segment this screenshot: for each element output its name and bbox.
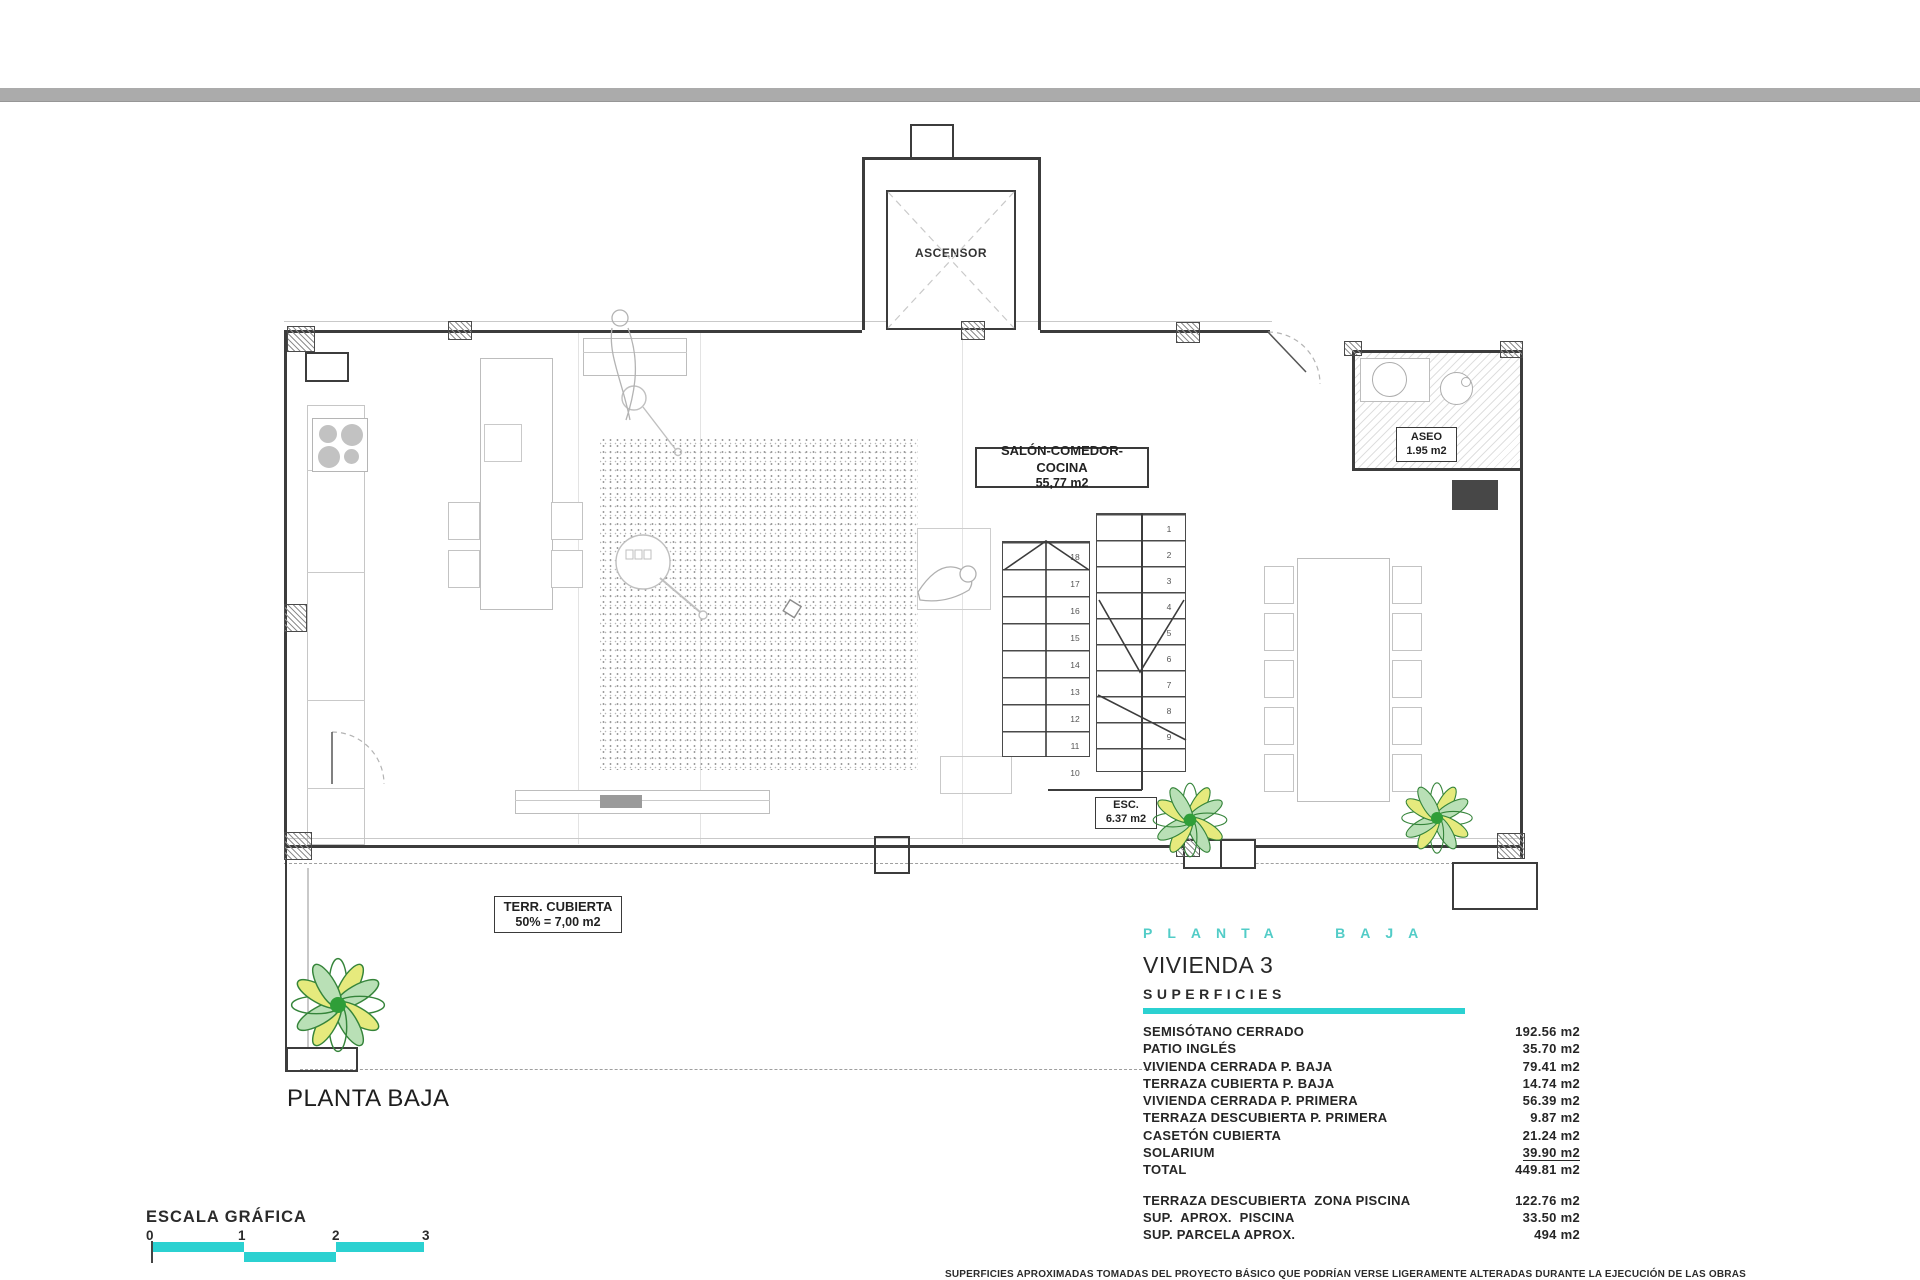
exterior-step-line <box>1220 839 1222 869</box>
surfaces-row-value: 14.74 m2 <box>1523 1076 1580 1091</box>
chair-icon <box>1264 613 1294 651</box>
chair-icon <box>551 502 583 540</box>
surfaces-row-value: 122.76 m2 <box>1515 1193 1580 1208</box>
chair-icon <box>1392 566 1422 604</box>
stairs-step-numbers-left: 181716151413121110 <box>1062 544 1088 787</box>
footer-disclaimer: SUPERFICIES APROXIMADAS TOMADAS DEL PROY… <box>945 1269 1775 1280</box>
surfaces-row: SUP. PARCELA APROX.494 m2 <box>1143 1227 1580 1244</box>
scale-bar-segment <box>244 1252 336 1262</box>
elevator-car <box>886 190 1016 330</box>
panel-section-heading: SUPERFICIES <box>1143 986 1603 1002</box>
terraza-label-line2: 50% = 7,00 m2 <box>495 915 621 931</box>
scale-bar-segment <box>336 1242 424 1252</box>
surfaces-row-value: 33.50 m2 <box>1523 1210 1580 1225</box>
surfaces-row-label: SOLARIUM <box>1143 1145 1215 1160</box>
stair-step-number: 15 <box>1062 625 1088 652</box>
elevator-label: ASCENSOR <box>886 246 1016 260</box>
panel-title: PLANTA BAJA <box>1143 925 1603 941</box>
surfaces-row: TERRAZA DESCUBIERTA P. PRIMERA9.87 m2 <box>1143 1110 1580 1127</box>
surfaces-row-value: 39.90 m2 <box>1523 1145 1580 1161</box>
column-marker <box>1176 322 1200 343</box>
scale-label: ESCALA GRÁFICA <box>146 1208 446 1227</box>
bathroom-wall-bottom <box>1352 468 1523 471</box>
column-marker <box>284 832 312 860</box>
elevator-shaft-notch <box>910 124 954 158</box>
surfaces-row-value: 192.56 m2 <box>1515 1024 1580 1039</box>
sink-drain-icon <box>1461 377 1471 387</box>
terrace-dashed-line-bottom <box>300 1069 1157 1070</box>
esc-label-line2: 6.37 m2 <box>1096 813 1156 827</box>
surfaces-row-label: CASETÓN CUBIERTA <box>1143 1128 1281 1143</box>
stove-burner <box>344 449 359 464</box>
surfaces-row-value: 56.39 m2 <box>1523 1093 1580 1108</box>
terraza-label-box: TERR. CUBIERTA 50% = 7,00 m2 <box>494 896 622 933</box>
esc-label-line1: ESC. <box>1096 799 1156 813</box>
stair-step-number: 17 <box>1062 571 1088 598</box>
tv-console-line <box>515 800 770 801</box>
salon-label-box: SALÓN-COMEDOR-COCINA 55,77 m2 <box>975 447 1149 488</box>
chair-icon <box>1264 566 1294 604</box>
surfaces-row-value: 35.70 m2 <box>1523 1041 1580 1056</box>
chair-icon <box>1264 707 1294 745</box>
floor-joint-line <box>578 332 579 844</box>
column-marker <box>284 604 307 632</box>
surfaces-row: VIVIENDA CERRADA P. BAJA79.41 m2 <box>1143 1059 1580 1076</box>
dining-table-large <box>1297 558 1390 802</box>
surfaces-table-secondary: TERRAZA DESCUBIERTA ZONA PISCINA122.76 m… <box>1143 1193 1580 1245</box>
wall-top-left <box>284 330 862 333</box>
surfaces-row-label: SUP. APROX. PISCINA <box>1143 1210 1295 1225</box>
wall-right <box>1520 350 1523 858</box>
terrace-wall-inner <box>307 868 309 1048</box>
stair-step-number: 7 <box>1156 672 1182 698</box>
aseo-label-line1: ASEO <box>1397 431 1456 445</box>
panel-accent-bar <box>1143 1008 1465 1014</box>
panel-subtitle: VIVIENDA 3 <box>1143 952 1603 979</box>
bench-top <box>583 338 687 376</box>
door-swing-entry <box>1268 332 1320 384</box>
column-marker <box>287 326 315 352</box>
chair-icon <box>1264 754 1294 792</box>
surfaces-table: SEMISÓTANO CERRADO192.56 m2PATIO INGLÉS3… <box>1143 1024 1580 1180</box>
table-object <box>484 424 522 462</box>
scale-bar-segment <box>152 1242 244 1252</box>
surfaces-row: SUP. APROX. PISCINA33.50 m2 <box>1143 1210 1580 1227</box>
surfaces-row: TERRAZA DESCUBIERTA ZONA PISCINA122.76 m… <box>1143 1193 1580 1210</box>
chair-icon <box>551 550 583 588</box>
sofa <box>917 528 991 610</box>
surfaces-row-label: VIVIENDA CERRADA P. PRIMERA <box>1143 1093 1358 1108</box>
esc-label-box: ESC. 6.37 m2 <box>1095 797 1157 829</box>
terraza-label-line1: TERR. CUBIERTA <box>495 899 621 915</box>
wall-top-right <box>1040 330 1270 333</box>
surfaces-row: TOTAL449.81 m2 <box>1143 1162 1580 1179</box>
stove-burner <box>318 446 340 468</box>
stairs-step-numbers-right: 123456789 <box>1156 516 1182 750</box>
sofa-landing <box>940 756 1012 794</box>
salon-label-line1: SALÓN-COMEDOR-COCINA <box>977 443 1147 476</box>
column-marker <box>1500 341 1523 358</box>
surfaces-row: CASETÓN CUBIERTA21.24 m2 <box>1143 1128 1580 1145</box>
counter-divider <box>307 700 365 701</box>
counter-divider <box>307 572 365 573</box>
floor-title: PLANTA BAJA <box>287 1085 449 1113</box>
tv-unit <box>600 795 642 808</box>
chair-icon <box>448 502 480 540</box>
corner-pillar <box>305 352 349 382</box>
chair-icon <box>1392 707 1422 745</box>
surfaces-row: SOLARIUM39.90 m2 <box>1143 1145 1580 1162</box>
scale-bar-end-tick <box>151 1241 153 1263</box>
stair-step-number: 8 <box>1156 698 1182 724</box>
exterior-landing <box>1452 862 1538 910</box>
column-marker <box>1344 341 1362 356</box>
surfaces-row: PATIO INGLÉS35.70 m2 <box>1143 1041 1580 1058</box>
column-marker <box>1176 833 1200 857</box>
plant-icon <box>292 959 385 1052</box>
stair-step-number: 10 <box>1062 760 1088 787</box>
stair-step-number: 2 <box>1156 542 1182 568</box>
stove-burner <box>341 424 363 446</box>
chair-icon <box>1392 660 1422 698</box>
elevator-shaft-wall-right <box>1038 157 1041 330</box>
toilet-icon <box>1372 362 1407 397</box>
scale-tick-label: 3 <box>422 1228 430 1243</box>
dark-block <box>1452 480 1498 510</box>
stair-step-number: 12 <box>1062 706 1088 733</box>
surfaces-row-label: TERRAZA DESCUBIERTA P. PRIMERA <box>1143 1110 1387 1125</box>
chair-icon <box>448 550 480 588</box>
info-panel: PLANTA BAJA VIVIENDA 3 SUPERFICIES SEMIS… <box>1143 925 1603 1245</box>
stair-step-number: 3 <box>1156 568 1182 594</box>
surfaces-row-value: 494 m2 <box>1534 1227 1580 1242</box>
graphic-scale: ESCALA GRÁFICA 0123 <box>146 1208 446 1268</box>
stair-step-number: 11 <box>1062 733 1088 760</box>
stair-step-number: 16 <box>1062 598 1088 625</box>
tv-console <box>515 790 770 814</box>
surfaces-row-value: 21.24 m2 <box>1523 1128 1580 1143</box>
surfaces-row: VIVIENDA CERRADA P. PRIMERA56.39 m2 <box>1143 1093 1580 1110</box>
plant-icon <box>1402 783 1472 853</box>
surfaces-row-label: TERRAZA CUBIERTA P. BAJA <box>1143 1076 1334 1091</box>
stair-step-number: 18 <box>1062 544 1088 571</box>
surfaces-row-label: SUP. PARCELA APROX. <box>1143 1227 1295 1242</box>
chair-icon <box>1392 754 1422 792</box>
counter-divider <box>307 788 365 789</box>
exterior-step <box>874 836 910 874</box>
surfaces-row: SEMISÓTANO CERRADO192.56 m2 <box>1143 1024 1580 1041</box>
stove-burner <box>319 425 337 443</box>
scale-tick-label: 2 <box>332 1228 340 1243</box>
surfaces-row-value: 79.41 m2 <box>1523 1059 1580 1074</box>
stair-step-number: 4 <box>1156 594 1182 620</box>
floor-plan: ASCENSOR 181716151413121110 123456789 <box>0 0 1920 1280</box>
surfaces-row: TERRAZA CUBIERTA P. BAJA14.74 m2 <box>1143 1076 1580 1093</box>
column-marker <box>1497 833 1525 859</box>
elevator-shaft-wall-left <box>862 157 865 330</box>
aseo-label-line2: 1.95 m2 <box>1397 445 1456 459</box>
surfaces-row-value: 449.81 m2 <box>1515 1162 1580 1177</box>
column-marker <box>448 321 472 340</box>
surfaces-row-label: PATIO INGLÉS <box>1143 1041 1236 1056</box>
salon-label-line2: 55,77 m2 <box>977 476 1147 492</box>
terrace-corner-box <box>286 1047 358 1072</box>
stair-step-number: 1 <box>1156 516 1182 542</box>
stair-step-number: 13 <box>1062 679 1088 706</box>
bathroom-wall-top <box>1352 350 1523 353</box>
stairs-divider <box>1141 513 1143 790</box>
wall-left <box>284 330 287 858</box>
terrace-wall-outer <box>285 858 287 1072</box>
column-marker <box>961 321 985 340</box>
terrace-dashed-line <box>284 863 1454 864</box>
chair-icon <box>1392 613 1422 651</box>
aseo-label-box: ASEO 1.95 m2 <box>1396 427 1457 462</box>
patio-stipple-area <box>600 437 918 770</box>
dining-table-small <box>480 358 553 610</box>
scale-tick-label: 1 <box>238 1228 246 1243</box>
surfaces-row-label: SEMISÓTANO CERRADO <box>1143 1024 1304 1039</box>
surfaces-row-label: VIVIENDA CERRADA P. BAJA <box>1143 1059 1332 1074</box>
surfaces-row-label: TOTAL <box>1143 1162 1187 1177</box>
bathroom-wall-left <box>1352 350 1355 470</box>
stair-step-number: 5 <box>1156 620 1182 646</box>
wall-light-line <box>284 321 1272 322</box>
stair-step-number: 14 <box>1062 652 1088 679</box>
surfaces-row-value: 9.87 m2 <box>1530 1110 1580 1125</box>
chair-icon <box>1264 660 1294 698</box>
stair-step-number: 9 <box>1156 724 1182 750</box>
surfaces-row-label: TERRAZA DESCUBIERTA ZONA PISCINA <box>1143 1193 1411 1208</box>
stairs-bottom-line <box>1048 789 1142 791</box>
bench-top-line <box>583 352 687 353</box>
stair-step-number: 6 <box>1156 646 1182 672</box>
